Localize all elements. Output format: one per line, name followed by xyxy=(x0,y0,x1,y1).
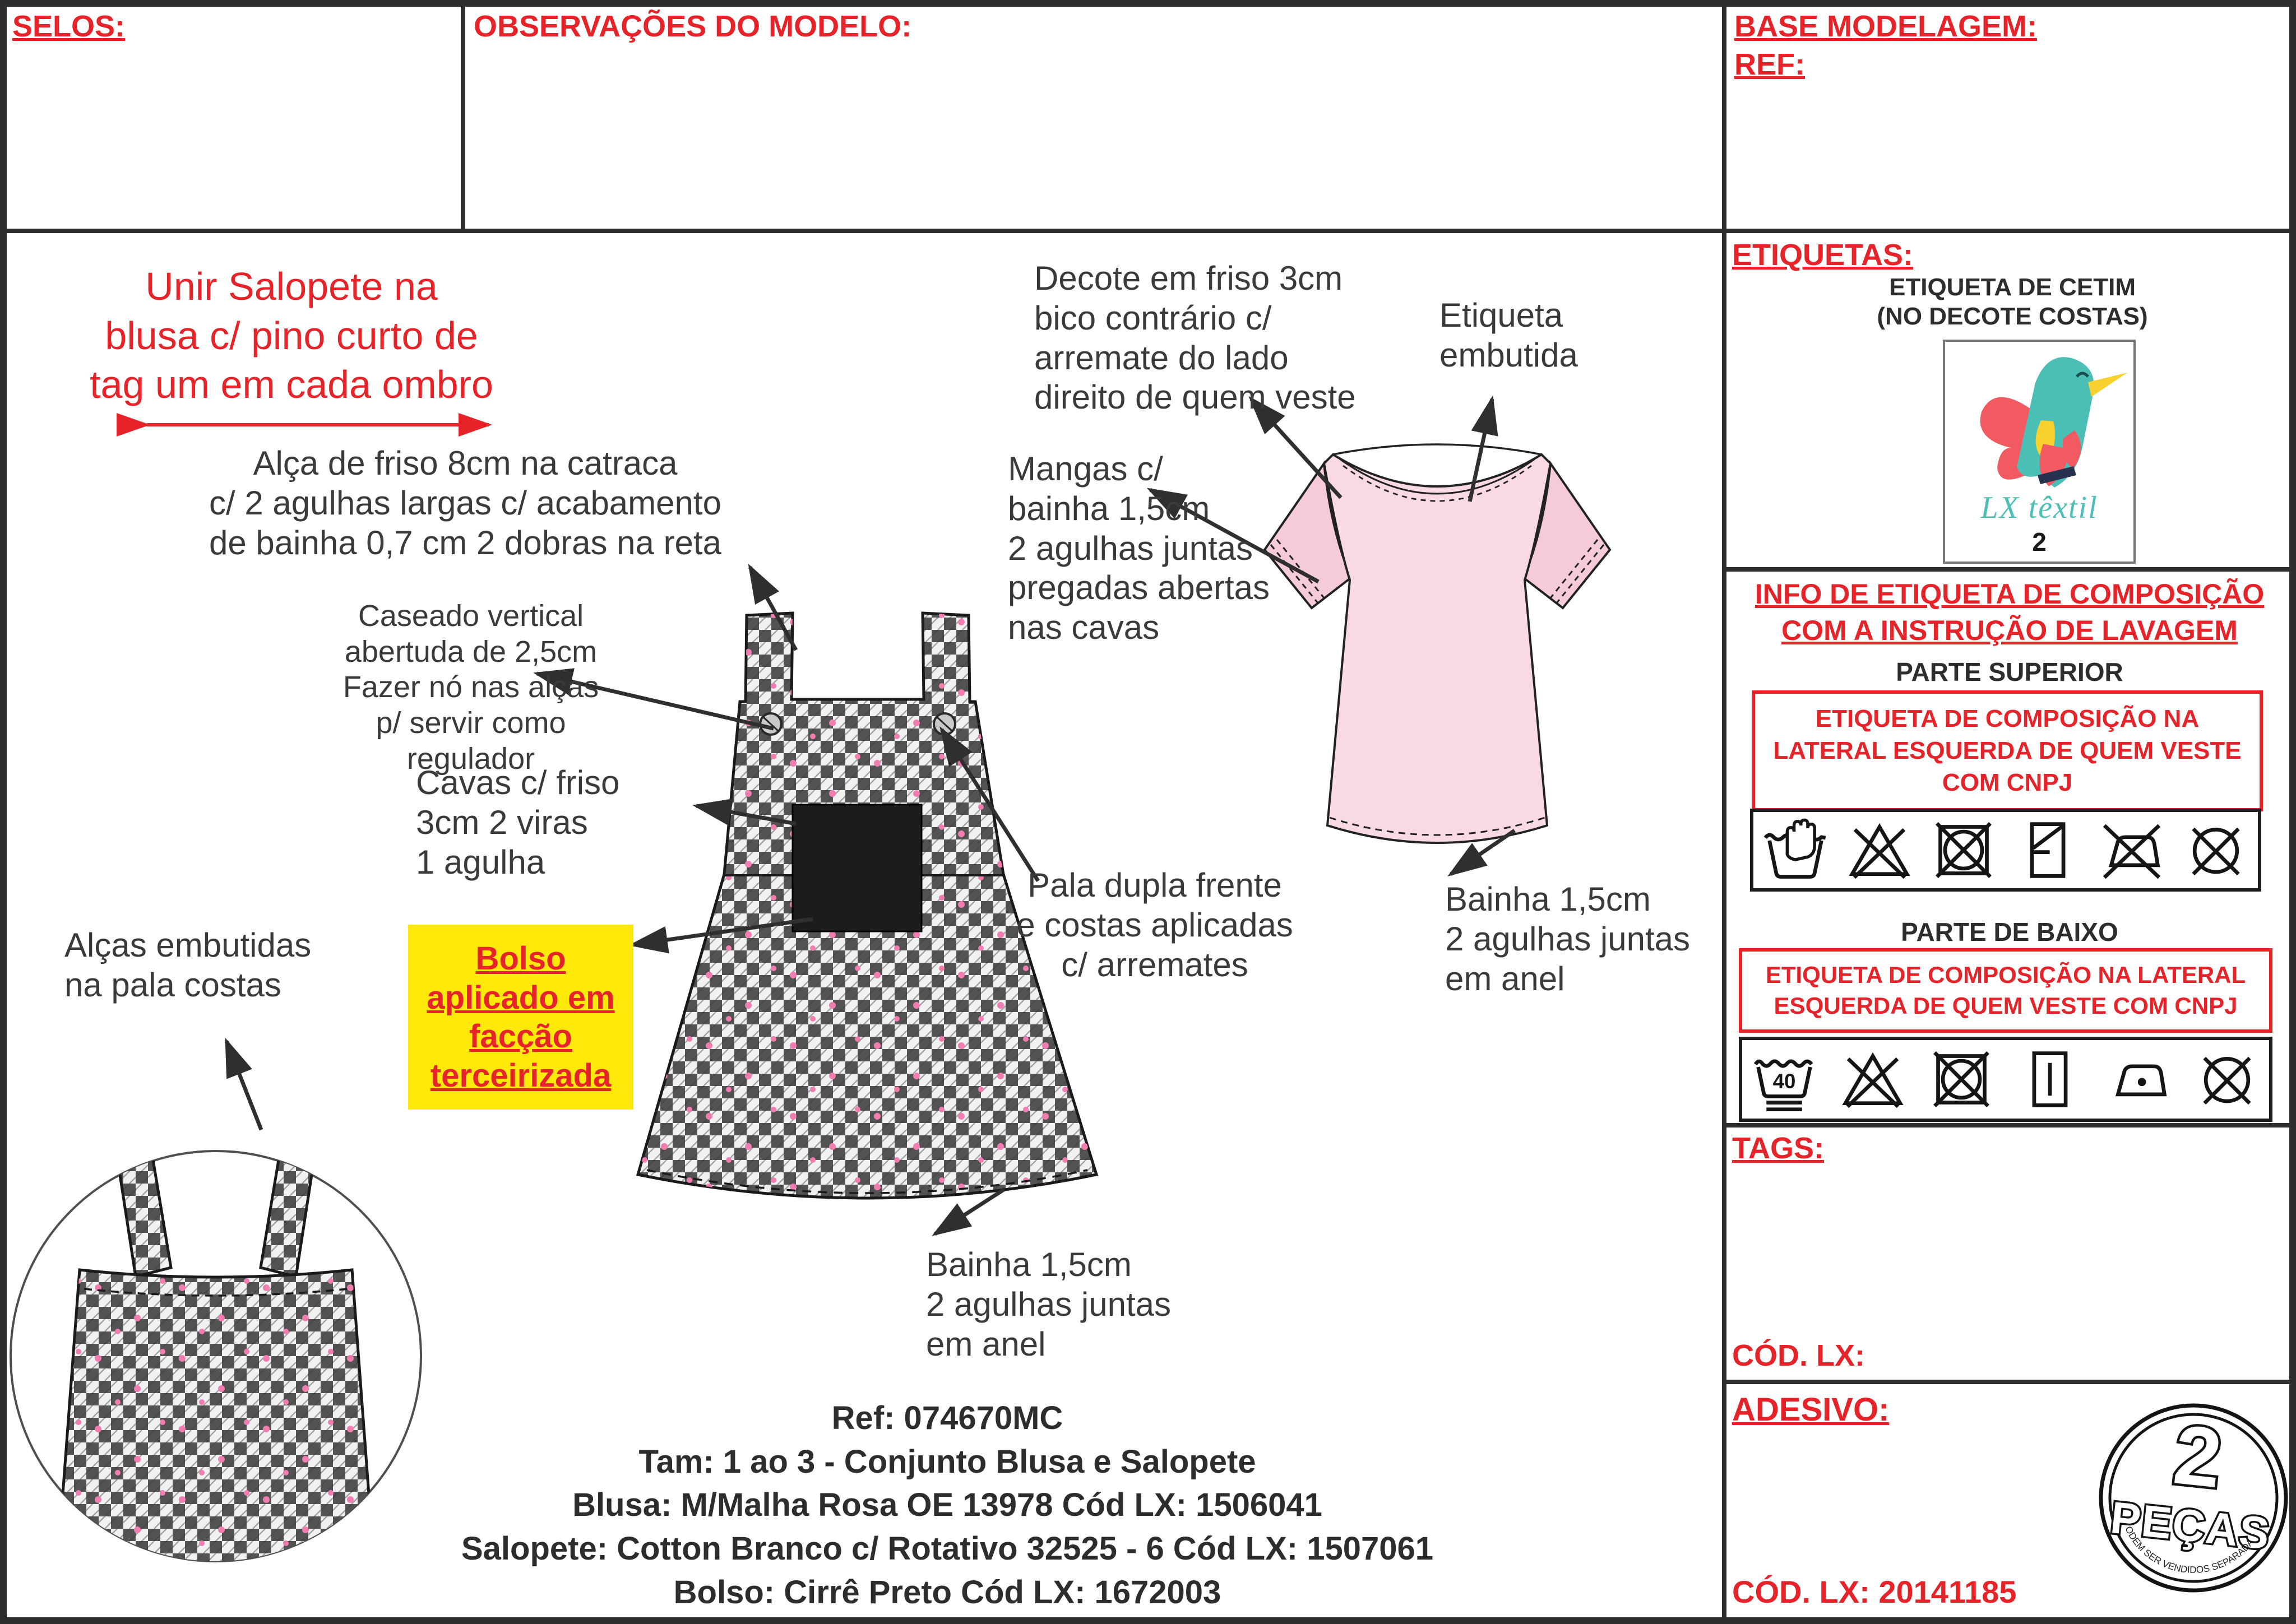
divider xyxy=(1722,1123,2296,1127)
do-not-dry-clean-icon xyxy=(2193,1045,2261,1113)
care-symbols-superior xyxy=(1750,809,2261,892)
hand-wash-icon xyxy=(1761,816,1830,884)
note-mangas: Mangas c/ bainha 1,5cm 2 agulhas juntas … xyxy=(1008,449,1311,648)
note-bainha-salopete: Bainha 1,5cm 2 agulhas juntas em anel xyxy=(926,1245,1195,1364)
note-cavas: Cavas c/ friso 3cm 2 viras 1 agulha xyxy=(416,763,657,882)
info-composicao-title: INFO DE ETIQUETA DE COMPOSIÇÃO COM A INS… xyxy=(1729,576,2290,649)
drip-dry-icon xyxy=(2016,1045,2084,1113)
selos-label: SELOS: xyxy=(12,9,125,44)
etiquetas-label: ETIQUETAS: xyxy=(1732,238,1913,272)
logo-size-number: 2 xyxy=(2032,527,2047,557)
footer-bolso: Bolso: Cirrê Preto Cód LX: 1672003 xyxy=(314,1571,1581,1614)
footer-salopete: Salopete: Cotton Branco c/ Rotativo 3252… xyxy=(314,1527,1581,1571)
do-not-bleach-icon xyxy=(1845,816,1914,884)
tech-pack-sheet: SELOS: OBSERVAÇÕES DO MODELO: BASE MODEL… xyxy=(0,0,2296,1624)
satin-label-preview: LX têxtil 2 xyxy=(1943,340,2136,564)
ref-label: REF: xyxy=(1734,47,1805,82)
note-decote: Decote em friso 3cm bico contrário c/ ar… xyxy=(1034,259,1382,417)
observacoes-label: OBSERVAÇÕES DO MODELO: xyxy=(474,9,911,44)
footer-spec-block: Ref: 074670MC Tam: 1 ao 3 - Conjunto Blu… xyxy=(314,1396,1581,1614)
base-modelagem-label: BASE MODELAGEM: xyxy=(1734,9,2037,44)
adesivo-label: ADESIVO: xyxy=(1732,1391,1889,1428)
stamp-number: 2 xyxy=(2170,1407,2226,1506)
do-not-dry-clean-icon xyxy=(2182,816,2250,884)
note-alca-friso: Alça de friso 8cm na catraca c/ 2 agulha… xyxy=(157,444,774,563)
divider xyxy=(461,0,465,233)
do-not-tumble-dry-icon xyxy=(1927,1045,1996,1113)
wash-40-gentle-icon xyxy=(1750,1045,1818,1113)
care-symbols-baixo xyxy=(1739,1037,2272,1122)
hummingbird-logo-icon xyxy=(1947,342,2132,493)
footer-tam: Tam: 1 ao 3 - Conjunto Blusa e Salopete xyxy=(314,1440,1581,1484)
do-not-iron-icon xyxy=(2098,816,2166,884)
do-not-tumble-dry-icon xyxy=(1929,816,1998,884)
note-alcas-embutidas: Alças embutidas na pala costas xyxy=(64,926,334,1005)
divider xyxy=(1722,567,2296,572)
note-bainha-blusa: Bainha 1,5cm 2 agulhas juntas em anel xyxy=(1445,880,1714,999)
blouse-drawing xyxy=(1265,444,1610,843)
iron-low-icon xyxy=(2104,1045,2173,1113)
cetim-subtitle: (NO DECOTE COSTAS) xyxy=(1771,303,2253,331)
note-unir-salopete: Unir Salopete na blusa c/ pino curto de … xyxy=(50,262,533,410)
parte-baixo-note: ETIQUETA DE COMPOSIÇÃO NA LATERAL ESQUER… xyxy=(1739,948,2272,1033)
footer-ref: Ref: 074670MC xyxy=(314,1396,1581,1440)
parte-superior-label: PARTE SUPERIOR xyxy=(1729,657,2290,687)
black-pocket xyxy=(793,805,922,931)
adesivo-cod-lx: CÓD. LX: 20141185 xyxy=(1732,1574,2016,1610)
divider xyxy=(1722,229,2296,233)
note-pala-dupla: Pala dupla frente e costas aplicadas c/ … xyxy=(1009,866,1300,985)
cetim-title: ETIQUETA DE CETIM xyxy=(1771,273,2253,301)
note-etiqueta-embutida: Etiqueta embutida xyxy=(1439,296,1619,375)
divider xyxy=(0,229,1726,233)
dry-flat-shade-icon xyxy=(2013,816,2082,884)
footer-blusa: Blusa: M/Malha Rosa OE 13978 Cód LX: 150… xyxy=(314,1483,1581,1527)
note-bolso-highlight: Bolso aplicado em facção terceirizada xyxy=(408,925,633,1110)
parte-superior-note: ETIQUETA DE COMPOSIÇÃO NA LATERAL ESQUER… xyxy=(1752,690,2263,811)
note-caseado: Caseado vertical abertuda de 2,5cm Fazer… xyxy=(331,598,611,777)
two-pieces-stamp: 2 PEÇAS *NÃO PODEM SER VENDIDOS SEPARADA… xyxy=(2095,1400,2292,1596)
cod-lx-label: CÓD. LX: xyxy=(1732,1338,1865,1373)
do-not-bleach-icon xyxy=(1839,1045,1907,1113)
divider xyxy=(1722,1380,2296,1384)
logo-brand-text: LX têxtil xyxy=(1980,490,2098,526)
tags-label: TAGS: xyxy=(1732,1131,1824,1166)
parte-baixo-label: PARTE DE BAIXO xyxy=(1729,917,2290,947)
